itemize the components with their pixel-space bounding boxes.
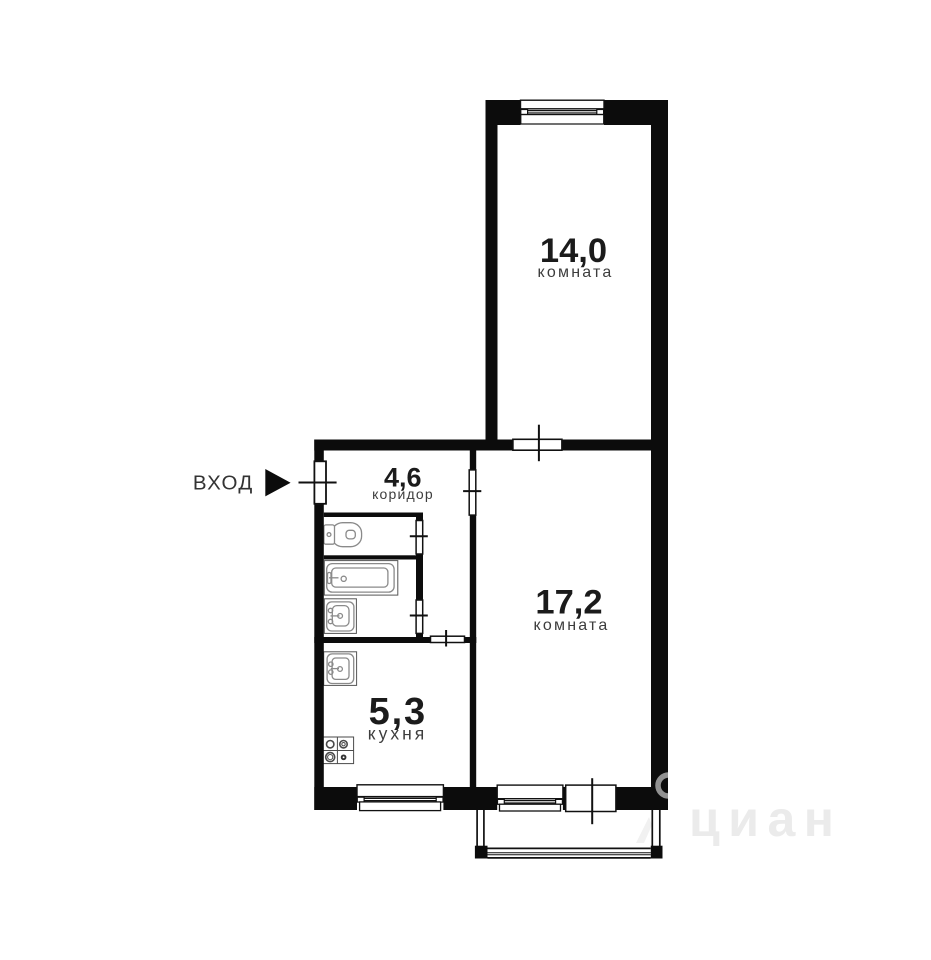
svg-text:17,2: 17,2 <box>535 583 602 621</box>
svg-text:комната: комната <box>538 264 614 281</box>
svg-text:кухня: кухня <box>368 724 428 744</box>
svg-text:циан: циан <box>689 791 842 847</box>
svg-text:комната: комната <box>534 617 610 634</box>
svg-text:ВХОД: ВХОД <box>193 472 254 495</box>
svg-text:коридор: коридор <box>372 486 434 502</box>
